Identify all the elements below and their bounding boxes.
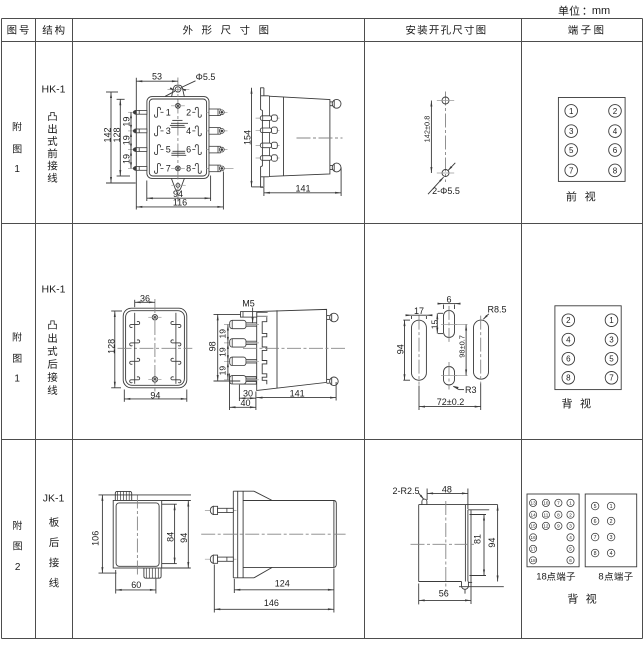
svg-text:2: 2 — [186, 107, 191, 117]
svg-text:R3: R3 — [465, 385, 477, 395]
svg-text:72±0.2: 72±0.2 — [437, 397, 464, 407]
svg-text:141: 141 — [290, 388, 305, 398]
svg-text:8: 8 — [566, 374, 571, 383]
svg-text:1: 1 — [609, 316, 614, 325]
svg-text:HK-1: HK-1 — [42, 84, 66, 96]
svg-text:4: 4 — [569, 535, 572, 540]
svg-text:17: 17 — [414, 306, 424, 316]
svg-text:2-Φ5.5: 2-Φ5.5 — [432, 186, 460, 196]
svg-text:6: 6 — [446, 295, 451, 305]
svg-text:36: 36 — [140, 293, 150, 303]
svg-text:7: 7 — [609, 374, 614, 383]
svg-text:94: 94 — [150, 390, 160, 400]
svg-text:7: 7 — [166, 164, 171, 174]
svg-text:19: 19 — [217, 366, 227, 376]
svg-text:19: 19 — [121, 135, 131, 145]
svg-text:56: 56 — [439, 589, 449, 599]
svg-text:60: 60 — [131, 580, 141, 590]
svg-text:142: 142 — [102, 127, 112, 142]
svg-text:15: 15 — [531, 524, 537, 529]
svg-text:13: 13 — [531, 501, 537, 506]
svg-text:18: 18 — [536, 572, 547, 583]
svg-text:7: 7 — [557, 501, 560, 506]
svg-text:12: 12 — [543, 524, 549, 529]
svg-text:1: 1 — [569, 107, 574, 116]
svg-text:6: 6 — [186, 145, 191, 155]
svg-text:116: 116 — [173, 198, 187, 208]
svg-text:53: 53 — [152, 72, 162, 82]
svg-text:HK-1: HK-1 — [42, 284, 66, 296]
svg-text:141: 141 — [295, 183, 310, 193]
svg-text:124: 124 — [275, 579, 290, 589]
svg-text:7: 7 — [569, 166, 574, 175]
svg-text:40: 40 — [240, 398, 250, 408]
svg-text:1: 1 — [569, 501, 572, 506]
svg-text:3: 3 — [166, 126, 171, 136]
svg-text:3: 3 — [610, 535, 613, 541]
svg-text:81: 81 — [472, 534, 482, 544]
svg-text:2: 2 — [613, 107, 618, 116]
svg-text:19: 19 — [218, 347, 228, 357]
svg-text:Φ5.5: Φ5.5 — [196, 72, 216, 82]
svg-text:6: 6 — [594, 519, 597, 525]
svg-text:84: 84 — [166, 532, 176, 542]
svg-text:2: 2 — [15, 562, 21, 573]
svg-text:94: 94 — [487, 538, 497, 548]
svg-text:142±0.8: 142±0.8 — [423, 116, 432, 143]
svg-text:3: 3 — [569, 127, 574, 136]
svg-text:48: 48 — [442, 484, 452, 494]
svg-text:106: 106 — [90, 531, 100, 546]
svg-text:98: 98 — [207, 341, 217, 351]
svg-text:146: 146 — [264, 598, 279, 608]
svg-text:JK-1: JK-1 — [43, 493, 65, 505]
svg-text:mm: mm — [592, 5, 610, 17]
svg-text:1: 1 — [610, 504, 613, 510]
svg-text:2: 2 — [566, 316, 571, 325]
svg-text:10: 10 — [543, 501, 549, 506]
svg-text:1: 1 — [14, 374, 20, 385]
svg-text:7: 7 — [594, 535, 597, 541]
svg-text:2-R2.5: 2-R2.5 — [392, 486, 419, 496]
svg-text:9: 9 — [557, 524, 560, 529]
svg-text:5: 5 — [569, 547, 572, 552]
svg-text:5: 5 — [166, 145, 171, 155]
svg-text:8: 8 — [557, 513, 560, 518]
svg-text:8: 8 — [186, 164, 191, 174]
svg-text:R8.5: R8.5 — [487, 305, 506, 315]
svg-text:4: 4 — [186, 126, 191, 136]
svg-text:98±0.7: 98±0.7 — [457, 335, 466, 358]
svg-text:18: 18 — [531, 558, 537, 563]
svg-text:4: 4 — [610, 551, 613, 557]
svg-text:1: 1 — [14, 164, 20, 175]
svg-text:3: 3 — [569, 524, 572, 529]
svg-text:154: 154 — [243, 130, 253, 145]
svg-text:5: 5 — [594, 504, 597, 510]
svg-text:3: 3 — [609, 336, 614, 345]
svg-text:11: 11 — [544, 513, 549, 518]
svg-text:8: 8 — [613, 166, 618, 175]
svg-text:14: 14 — [531, 513, 537, 518]
svg-text:15: 15 — [429, 320, 439, 330]
svg-text:6: 6 — [566, 355, 571, 364]
svg-text:6: 6 — [569, 558, 572, 563]
svg-text:94: 94 — [179, 533, 189, 543]
svg-text:4: 4 — [613, 127, 618, 136]
svg-text:8: 8 — [598, 572, 603, 583]
svg-text:M5: M5 — [242, 298, 255, 308]
svg-text:2: 2 — [610, 519, 613, 525]
svg-text:4: 4 — [566, 336, 571, 345]
svg-text:19: 19 — [121, 154, 131, 164]
svg-text:2: 2 — [569, 513, 572, 518]
svg-text:16: 16 — [531, 535, 537, 540]
svg-text:8: 8 — [594, 551, 597, 557]
svg-text:5: 5 — [569, 146, 574, 155]
svg-text:19: 19 — [121, 117, 131, 127]
svg-text:6: 6 — [613, 146, 618, 155]
svg-text:94: 94 — [395, 344, 405, 354]
svg-text:1: 1 — [166, 107, 171, 117]
svg-text:19: 19 — [218, 329, 228, 339]
svg-text:128: 128 — [106, 339, 116, 354]
svg-text:17: 17 — [531, 547, 537, 552]
svg-text:5: 5 — [609, 355, 614, 364]
